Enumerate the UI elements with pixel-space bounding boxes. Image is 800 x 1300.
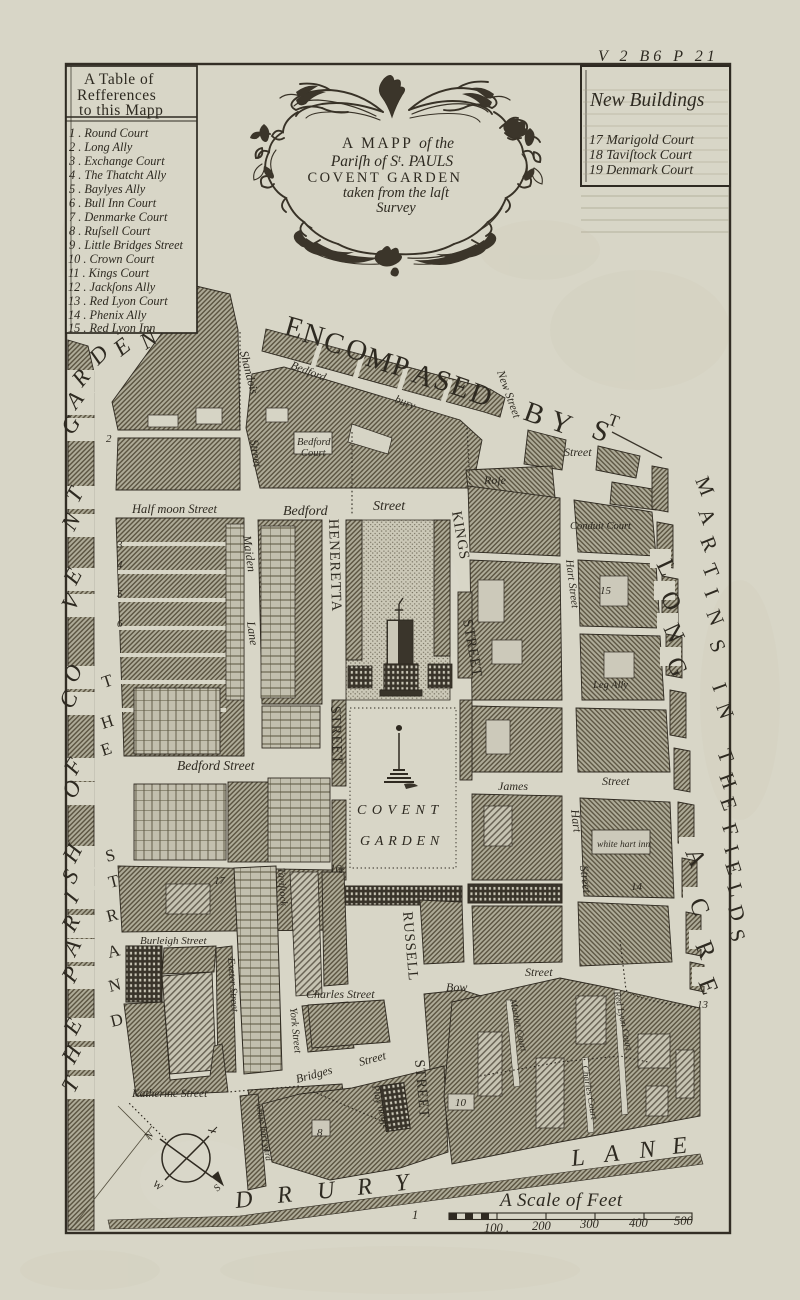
svg-text:COVENT: COVENT [357,803,444,818]
svg-text:Street: Street [373,499,406,514]
svg-text:2: 2 [106,433,112,445]
svg-text:3 . Exchange Court: 3 . Exchange Court [68,154,165,168]
svg-text:V 2 B6 P 21: V 2 B6 P 21 [598,48,719,65]
svg-text:Bedford: Bedford [297,437,331,448]
svg-text:Street: Street [602,774,630,788]
svg-text:taken from the laſt: taken from the laſt [343,185,450,201]
svg-text:5: 5 [117,588,123,600]
svg-text:Charles Street: Charles Street [306,987,375,1001]
svg-text:D: D [233,1186,254,1214]
svg-text:Bedford: Bedford [283,504,329,519]
svg-text:18 Taviſtock Court: 18 Taviſtock Court [589,147,693,162]
svg-text:300: 300 [579,1217,600,1231]
svg-text:Street: Street [525,965,553,979]
svg-text:Bedford Street: Bedford Street [177,758,256,773]
svg-text:6: 6 [117,618,123,630]
svg-text:14 . Phenix Ally: 14 . Phenix Ally [68,308,147,322]
svg-text:Street: Street [564,445,592,459]
svg-text:5 . Baylyes Ally: 5 . Baylyes Ally [69,182,146,196]
svg-text:New Buildings: New Buildings [589,90,704,111]
svg-text:100 .: 100 . [484,1221,509,1235]
svg-text:to this Mapp: to this Mapp [79,102,163,119]
svg-text:19 Denmark Court: 19 Denmark Court [589,162,694,177]
svg-text:15: 15 [600,585,612,597]
svg-text:Pariſh of St. PAULS: Pariſh of St. PAULS [330,153,454,170]
svg-text:400: 400 [629,1216,649,1230]
svg-text:✟: ✟ [337,865,345,875]
svg-text:A Table of: A Table of [84,71,154,88]
svg-text:13: 13 [697,999,709,1011]
svg-text:1 . Round Court: 1 . Round Court [69,126,149,140]
svg-text:E: E [670,1133,689,1161]
svg-text:Leg Ally: Leg Ally [592,680,628,691]
svg-text:STREET: STREET [327,706,345,766]
svg-text:R: R [275,1182,294,1210]
svg-text:Survey: Survey [376,200,416,216]
svg-text:4: 4 [117,559,123,571]
svg-text:8 . Ruſsell Court: 8 . Ruſsell Court [69,224,151,238]
svg-text:GARDEN: GARDEN [360,834,444,849]
svg-text:R: R [355,1174,374,1202]
svg-text:6 . Bull Inn Court: 6 . Bull Inn Court [69,196,157,210]
svg-text:COVENT GARDEN: COVENT GARDEN [307,170,462,186]
svg-text:17 Marigold Court: 17 Marigold Court [589,132,695,147]
svg-text:Katherine Street: Katherine Street [131,1088,208,1100]
svg-text:14: 14 [631,881,643,893]
svg-text:1: 1 [412,1208,418,1222]
svg-text:Conduit Court: Conduit Court [570,521,632,532]
svg-text:Bow: Bow [446,980,467,994]
svg-text:12 . Jackſons Ally: 12 . Jackſons Ally [68,280,156,294]
svg-text:Burleigh Street: Burleigh Street [140,935,207,947]
svg-text:Court: Court [301,448,327,459]
svg-text:200: 200 [532,1219,552,1233]
svg-text:Roſe: Roſe [483,473,507,487]
svg-text:Half moon Street: Half moon Street [131,502,217,516]
svg-text:white hart inn: white hart inn [597,840,651,850]
svg-text:2 . Long Ally: 2 . Long Ally [69,140,133,154]
svg-text:Hart: Hart [568,808,585,834]
svg-text:500: 500 [674,1214,694,1228]
svg-text:11 . Kings Court: 11 . Kings Court [68,266,150,280]
svg-text:7 . Denmarke Court: 7 . Denmarke Court [69,210,168,224]
svg-text:3: 3 [116,539,123,551]
svg-text:James: James [498,779,528,793]
svg-text:17: 17 [214,875,226,887]
svg-text:10: 10 [455,1097,467,1109]
svg-text:L: L [569,1145,586,1172]
svg-text:A Scale of Feet: A Scale of Feet [498,1190,623,1211]
svg-text:13 . Red Lyon Court: 13 . Red Lyon Court [68,294,168,308]
svg-text:8: 8 [317,1127,323,1139]
svg-text:HENERETTA: HENERETTA [325,519,344,613]
svg-text:9 . Little Bridges Street: 9 . Little Bridges Street [69,238,184,252]
svg-text:A MAPP of the: A MAPP of the [342,135,454,152]
svg-text:4 . The Thatcht Ally: 4 . The Thatcht Ally [69,168,167,182]
svg-text:10 . Crown Court: 10 . Crown Court [68,252,155,266]
